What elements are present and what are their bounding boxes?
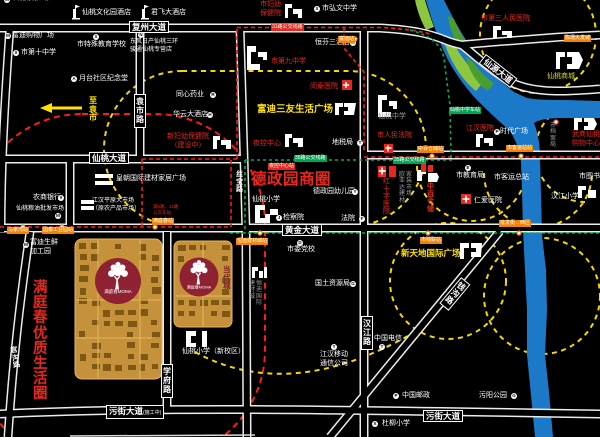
svg-text:满庭春MOMA: 满庭春MOMA xyxy=(104,288,132,295)
svg-text:满庭春MOMA: 满庭春MOMA xyxy=(187,284,212,290)
